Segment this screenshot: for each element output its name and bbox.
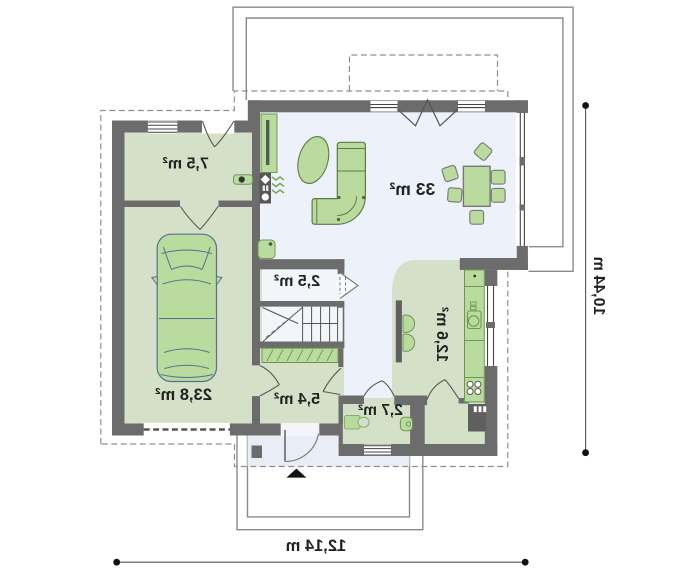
svg-text:33 m²: 33 m² bbox=[389, 179, 435, 199]
svg-text:7,5 m²: 7,5 m² bbox=[163, 156, 209, 173]
svg-text:12,6 m²: 12,6 m² bbox=[433, 307, 450, 362]
svg-text:10,44 m: 10,44 m bbox=[590, 257, 607, 316]
svg-text:23,8 m²: 23,8 m² bbox=[155, 386, 212, 404]
svg-text:2,7 m²: 2,7 m² bbox=[358, 402, 403, 419]
svg-text:12,14 m: 12,14 m bbox=[286, 537, 347, 555]
svg-text:5,4 m²: 5,4 m² bbox=[274, 391, 320, 408]
svg-text:2,5 m²: 2,5 m² bbox=[274, 273, 320, 290]
